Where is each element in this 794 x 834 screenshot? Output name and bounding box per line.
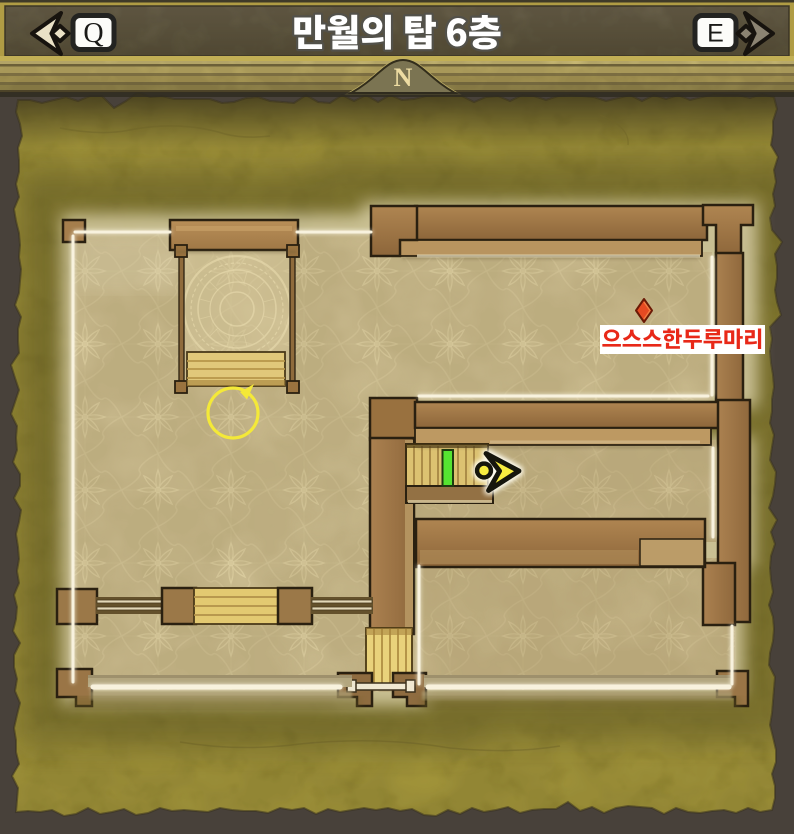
svg-text:E: E [707,20,724,48]
svg-text:Q: Q [83,18,103,49]
svg-text:N: N [394,63,413,92]
